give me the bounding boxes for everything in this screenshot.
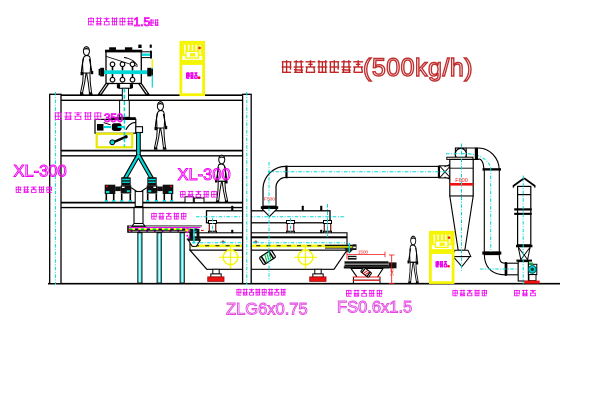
svg-text:1500: 1500 [358,249,369,254]
svg-text:F600: F600 [455,178,468,184]
svg-text:350: 350 [104,113,123,125]
svg-text:1.5: 1.5 [134,15,151,29]
svg-text:(500kg/h): (500kg/h) [363,54,473,82]
svg-text:545: 545 [389,268,394,276]
svg-text:XL-300: XL-300 [178,166,231,184]
svg-text:ZLG6x0.75: ZLG6x0.75 [226,301,308,319]
svg-text:FS0.6x1.5: FS0.6x1.5 [337,299,412,317]
svg-text:XL-300: XL-300 [14,163,67,181]
svg-text:F500: F500 [264,197,275,203]
